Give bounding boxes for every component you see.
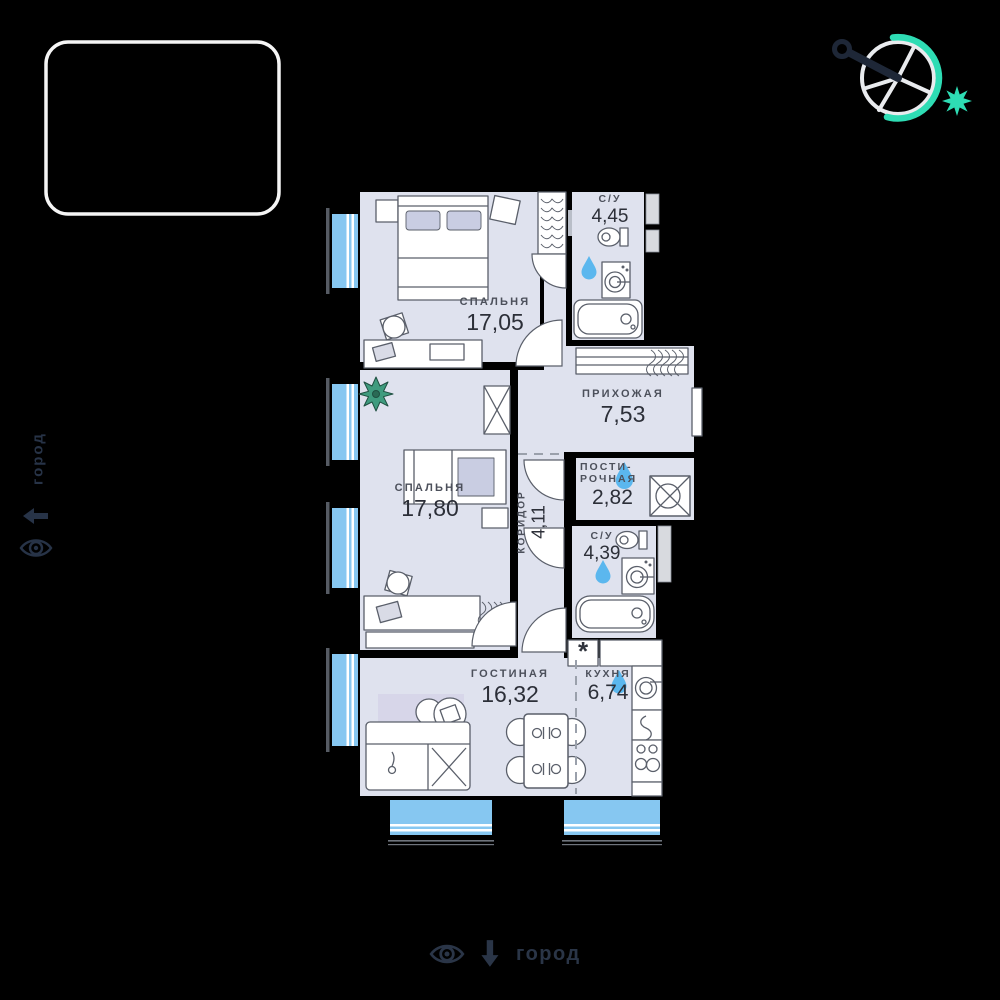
view-direction-bottom-label: город [516, 943, 581, 966]
room-area: 4,11 [530, 490, 549, 553]
closet-hangers-icon [538, 192, 566, 254]
frame-icon [490, 196, 520, 225]
view-direction-bottom: город [428, 938, 581, 970]
sink-icon [602, 262, 630, 298]
sink-icon [622, 558, 654, 594]
logo-frame [46, 42, 279, 214]
frame-icon [376, 200, 398, 222]
room-label-corridor: КОРИДОР 4,11 [489, 478, 577, 566]
fridge-star: * [568, 636, 598, 666]
toilet-icon [616, 531, 647, 549]
view-direction-left-label: город [30, 414, 47, 504]
kitchen-counter-top [600, 640, 662, 666]
shelf-icon [366, 632, 474, 648]
bathtub-icon [576, 596, 654, 632]
window-bedroom-2-b [332, 508, 358, 588]
room-name: КОРИДОР [517, 490, 528, 553]
sofa-icon [366, 722, 470, 790]
compass-north-icon [835, 37, 973, 118]
room-hallway-floor-left [518, 370, 544, 454]
double-bed-icon [398, 196, 488, 300]
eye-icon [428, 939, 466, 969]
left-arrow-icon [21, 502, 49, 532]
kitchen-counter-right [632, 666, 662, 796]
entrance-door-leaf [692, 388, 702, 436]
wardrobe-icon [576, 348, 688, 376]
desk-icon [364, 340, 482, 368]
washing-machine-icon [650, 476, 690, 516]
wardrobe-icon [484, 386, 510, 434]
sun-icon [942, 86, 972, 116]
window-living [332, 654, 358, 746]
desk-icon [364, 596, 480, 630]
eye-icon [18, 534, 54, 562]
toilet-icon [598, 228, 628, 246]
plant-icon [359, 377, 393, 411]
window-bedroom-2-a [332, 384, 358, 460]
bathtub-icon [574, 300, 642, 338]
floorplan-page: СПАЛЬНЯ 17,05 С/У 4,45 ПРИХОЖАЯ 7,53 ПОС… [0, 0, 1000, 1000]
window-bedroom-1 [332, 214, 358, 288]
down-arrow-icon [479, 938, 503, 970]
